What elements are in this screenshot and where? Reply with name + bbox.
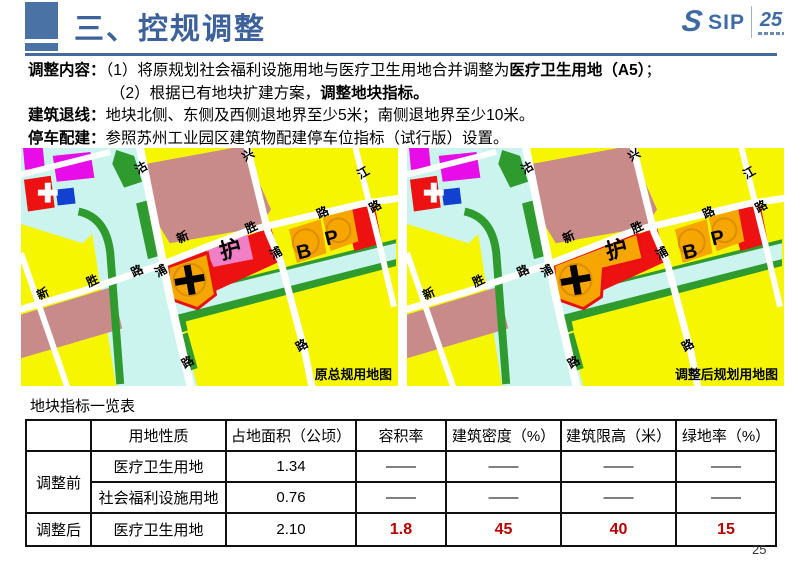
header-cell-green: 绿地率（%） [676, 420, 776, 451]
line2-text: （2）根据已有地块扩建方案， [110, 85, 320, 102]
anniversary-logo: 25 [758, 10, 784, 35]
header-cell-land-use: 用地性质 [91, 420, 226, 451]
table-row: 调整后 医疗卫生用地 2.10 1.8 45 40 15 [26, 513, 776, 546]
header-cell-area: 占地面积（公顷） [226, 420, 356, 451]
logo-divider [751, 6, 752, 38]
map-caption-after: 调整后规划用地图 [675, 367, 778, 382]
content-line-2: （2）根据已有地块扩建方案，调整地块指标。 [28, 83, 788, 106]
group-after: 调整后 [26, 513, 91, 546]
cell-density-highlight: 45 [446, 513, 561, 546]
indicator-table: 用地性质 占地面积（公顷） 容积率 建筑密度（%） 建筑限高（米） 绿地率（%）… [25, 419, 777, 547]
table-row: 社会福利设施用地 0.76 —— —— —— —— [26, 482, 776, 513]
line1-key: 医疗卫生用地（A5） [509, 62, 645, 79]
page-title: 三、控规调整 [74, 4, 266, 48]
line1-label: 调整内容： [28, 62, 106, 79]
cell-type: 医疗卫生用地 [91, 513, 226, 546]
map-adjusted-svg: 沽 浦 路 兴 浦 路 江 路 新 胜 路 新 胜 路 护 B P 调整后规划用… [407, 148, 784, 386]
content-line-1: 调整内容：（1）将原规划社会福利设施用地与医疗卫生用地合并调整为医疗卫生用地（A… [28, 60, 788, 83]
cell-green: —— [676, 482, 776, 513]
cell-area: 2.10 [226, 513, 356, 546]
sip-logo-text: SIP [708, 12, 745, 33]
page-number: 25 [752, 542, 766, 557]
cell-far-highlight: 1.8 [356, 513, 446, 546]
group-before: 调整前 [26, 451, 91, 513]
cell-height: —— [561, 482, 676, 513]
header-divider [25, 53, 777, 56]
sip-logo: S SIP 25 [682, 6, 784, 38]
table-title: 地块指标一览表 [30, 395, 135, 416]
table-header-row: 用地性质 占地面积（公顷） 容积率 建筑密度（%） 建筑限高（米） 绿地率（%） [26, 420, 776, 451]
anniversary-subtext-bars [758, 32, 784, 35]
title-accent-bar [25, 43, 58, 51]
cell-density: —— [446, 451, 561, 482]
line1-tail: ； [645, 62, 661, 79]
cell-green: —— [676, 451, 776, 482]
line2-key: 调整地块指标。 [320, 85, 429, 102]
table-row: 调整前 医疗卫生用地 1.34 —— —— —— —— [26, 451, 776, 482]
content-line-4: 停车配建：参照苏州工业园区建筑物配建停车位指标（试行版）设置。 [28, 128, 788, 151]
header-cell-height: 建筑限高（米） [561, 420, 676, 451]
cell-area: 1.34 [226, 451, 356, 482]
cell-height-highlight: 40 [561, 513, 676, 546]
line4-text: 参照苏州工业园区建筑物配建停车位指标（试行版）设置。 [106, 130, 509, 147]
line4-label: 停车配建： [28, 130, 106, 147]
header-cell-density: 建筑密度（%） [446, 420, 561, 451]
adjustment-text-block: 调整内容：（1）将原规划社会福利设施用地与医疗卫生用地合并调整为医疗卫生用地（A… [28, 60, 788, 150]
cell-density: —— [446, 482, 561, 513]
map-adjusted-plan: 沽 浦 路 兴 浦 路 江 路 新 胜 路 新 胜 路 护 B P 调整后规划用… [407, 148, 784, 386]
cell-area: 0.76 [226, 482, 356, 513]
title-accent-square [25, 2, 58, 39]
cell-far: —— [356, 451, 446, 482]
cell-far: —— [356, 482, 446, 513]
line3-text: 地块北侧、东侧及西侧退地界至少5米；南侧退地界至少10米。 [106, 107, 535, 124]
anniversary-number: 25 [758, 10, 784, 30]
line1-text: （1）将原规划社会福利设施用地与医疗卫生用地合并调整为 [106, 62, 510, 79]
map-original-svg: 沽 浦 路 兴 浦 路 江 路 新 胜 路 新 胜 路 护 B P 原总规用地图 [21, 148, 398, 386]
cell-height: —— [561, 451, 676, 482]
map-original-plan: 沽 浦 路 兴 浦 路 江 路 新 胜 路 新 胜 路 护 B P 原总规用地图 [21, 148, 398, 386]
map-caption-before: 原总规用地图 [315, 367, 392, 382]
sip-logo-mark: S [680, 7, 704, 37]
line3-label: 建筑退线： [28, 107, 106, 124]
cell-type: 社会福利设施用地 [91, 482, 226, 513]
cell-type: 医疗卫生用地 [91, 451, 226, 482]
header-cell-far: 容积率 [356, 420, 446, 451]
content-line-3: 建筑退线：地块北侧、东侧及西侧退地界至少5米；南侧退地界至少10米。 [28, 105, 788, 128]
header-cell-empty [26, 420, 91, 451]
